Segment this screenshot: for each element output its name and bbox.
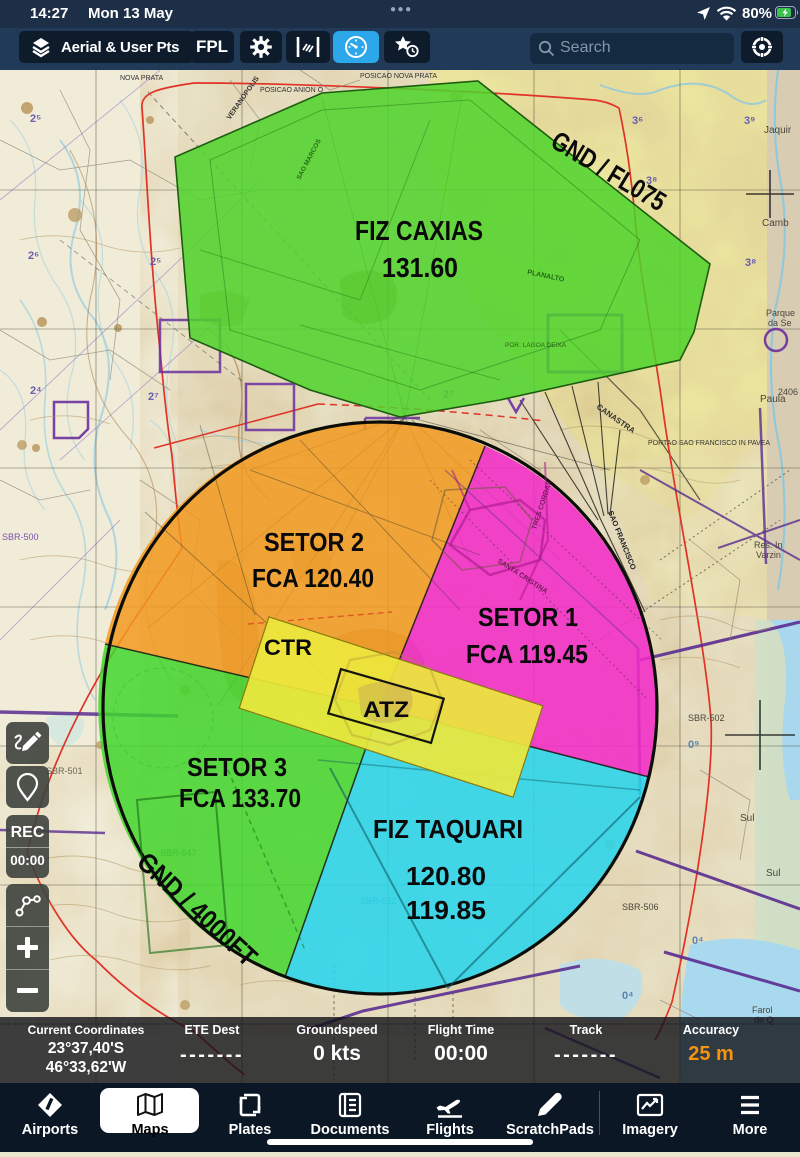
svg-text:SETOR 1: SETOR 1 xyxy=(478,602,578,632)
svg-text:2⁶: 2⁶ xyxy=(28,250,39,262)
svg-text:SBR-501: SBR-501 xyxy=(46,766,83,776)
svg-text:Parque: Parque xyxy=(766,308,795,318)
svg-text:119.85: 119.85 xyxy=(406,895,486,925)
svg-text:3⁹: 3⁹ xyxy=(744,115,755,127)
svg-text:SBR-506: SBR-506 xyxy=(622,902,659,912)
svg-text:FCA 120.40: FCA 120.40 xyxy=(252,563,374,593)
svg-text:SBR-502: SBR-502 xyxy=(688,713,725,723)
svg-text:FCA 119.45: FCA 119.45 xyxy=(466,639,588,669)
svg-text:2⁷: 2⁷ xyxy=(148,391,159,403)
svg-text:NOVA PRATA: NOVA PRATA xyxy=(120,75,164,82)
svg-text:SBR-500: SBR-500 xyxy=(2,532,39,542)
svg-text:Jaquir: Jaquir xyxy=(764,125,792,136)
svg-text:FIZ TAQUARI: FIZ TAQUARI xyxy=(373,814,523,844)
svg-text:Farol: Farol xyxy=(752,1005,773,1015)
svg-text:3⁸: 3⁸ xyxy=(745,257,756,269)
svg-text:FIZ CAXIAS: FIZ CAXIAS xyxy=(355,215,483,246)
svg-text:0⁴: 0⁴ xyxy=(692,935,704,947)
svg-text:2406: 2406 xyxy=(778,387,798,397)
svg-text:ATZ: ATZ xyxy=(363,697,409,722)
svg-text:SETOR 2: SETOR 2 xyxy=(264,527,364,557)
svg-text:POSICAO ANION O: POSICAO ANION O xyxy=(260,87,324,94)
svg-text:0⁴: 0⁴ xyxy=(622,990,634,1002)
svg-text:2⁴: 2⁴ xyxy=(30,385,42,397)
svg-text:Res. In: Res. In xyxy=(754,540,783,550)
svg-text:CTR: CTR xyxy=(264,635,312,660)
svg-text:Sul: Sul xyxy=(766,868,780,879)
svg-text:3⁶: 3⁶ xyxy=(632,115,643,127)
svg-text:da Se: da Se xyxy=(768,318,792,328)
svg-text:Camb: Camb xyxy=(762,218,789,229)
svg-text:131.60: 131.60 xyxy=(382,252,458,283)
svg-text:PORTAO SAO FRANCISCO IN PAVEA: PORTAO SAO FRANCISCO IN PAVEA xyxy=(648,440,770,447)
svg-text:2⁵: 2⁵ xyxy=(30,113,41,125)
svg-text:2⁵: 2⁵ xyxy=(150,256,161,268)
svg-text:POR. LAGOA DEIXA: POR. LAGOA DEIXA xyxy=(505,342,567,349)
svg-text:0⁹: 0⁹ xyxy=(688,739,699,751)
svg-text:SETOR 3: SETOR 3 xyxy=(187,752,287,782)
svg-text:Varzin: Varzin xyxy=(756,550,781,560)
svg-text:120.80: 120.80 xyxy=(406,861,486,891)
svg-text:POSICAO NOVA PRATA: POSICAO NOVA PRATA xyxy=(360,73,437,80)
svg-text:FCA 133.70: FCA 133.70 xyxy=(179,783,301,813)
